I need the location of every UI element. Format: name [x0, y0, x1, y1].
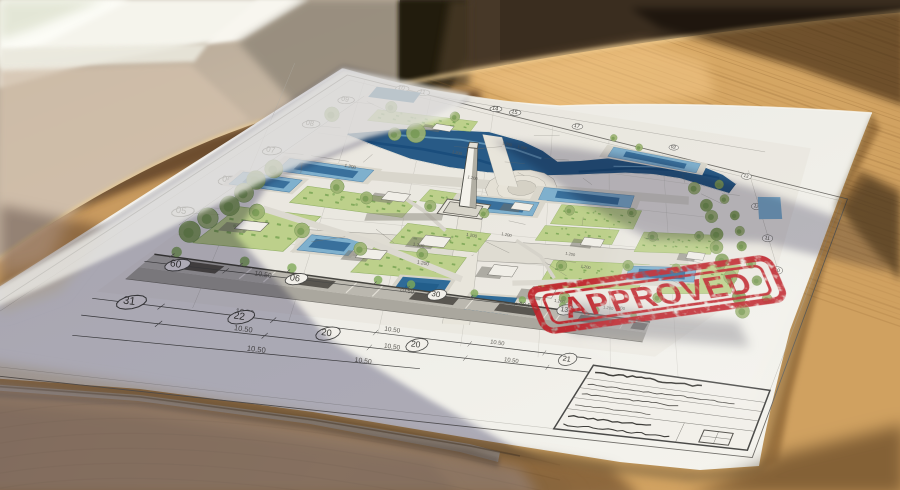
- svg-text:20: 20: [410, 338, 421, 349]
- svg-text:21: 21: [562, 354, 571, 364]
- svg-text:06: 06: [289, 272, 301, 283]
